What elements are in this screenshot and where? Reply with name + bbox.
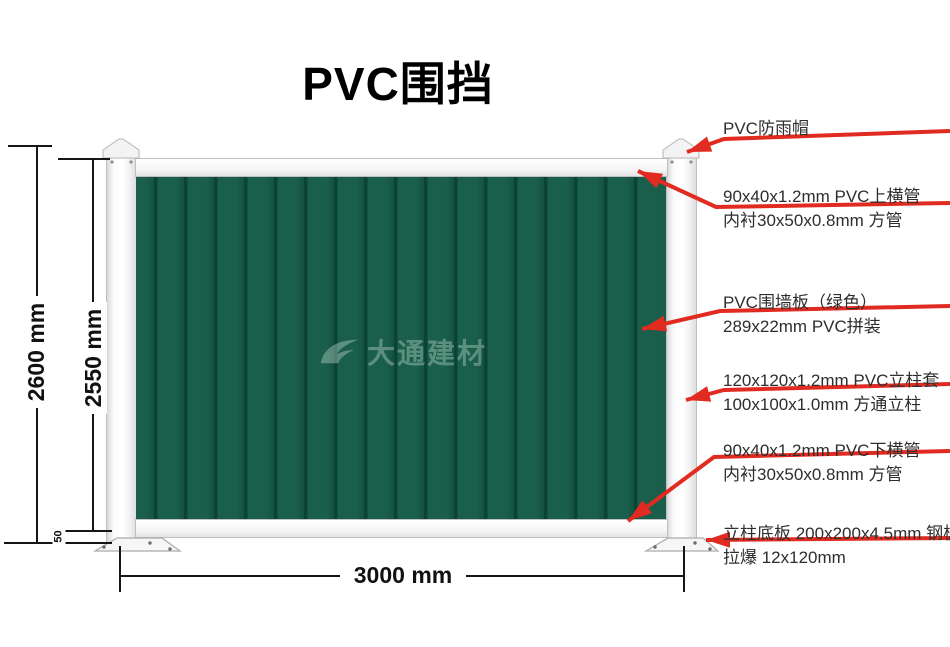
callout-line: PVC防雨帽 bbox=[723, 117, 809, 141]
callout-post: 120x120x1.2mm PVC立柱套 100x100x1.0mm 方通立柱 bbox=[723, 369, 939, 417]
callout-rain-cap: PVC防雨帽 bbox=[723, 117, 809, 141]
dim-label-2600: 2600 mm bbox=[22, 296, 50, 408]
dim-tick-3000-left bbox=[119, 546, 121, 592]
callout-bottom-rail: 90x40x1.2mm PVC下横管 内衬30x50x0.8mm 方管 bbox=[723, 439, 920, 487]
pvc-fence-diagram: PVC围挡 大通建材 bbox=[0, 0, 950, 647]
dim-label-3000: 3000 mm bbox=[340, 561, 466, 589]
callout-line: 内衬30x50x0.8mm 方管 bbox=[723, 463, 920, 487]
callout-line: 100x100x1.0mm 方通立柱 bbox=[723, 393, 939, 417]
dim-tick-50-top bbox=[60, 530, 112, 532]
dim-label-2550: 2550 mm bbox=[79, 302, 107, 414]
callout-line: 289x22mm PVC拼装 bbox=[723, 315, 881, 339]
callout-line: 拉爆 12x120mm bbox=[723, 546, 950, 570]
dim-tick-2550-top bbox=[58, 158, 110, 160]
base-plate-left bbox=[95, 538, 180, 551]
callout-line: 90x40x1.2mm PVC下横管 bbox=[723, 439, 920, 463]
dim-label-50: 50 bbox=[53, 526, 66, 548]
callout-base-plate: 立柱底板 200x200x4.5mm 钢板 拉爆 12x120mm bbox=[723, 522, 950, 570]
callout-line: PVC围墙板（绿色） bbox=[723, 291, 881, 315]
callout-line: 90x40x1.2mm PVC上横管 bbox=[723, 185, 920, 209]
callout-line: 立柱底板 200x200x4.5mm 钢板 bbox=[723, 522, 950, 546]
callout-top-rail: 90x40x1.2mm PVC上横管 内衬30x50x0.8mm 方管 bbox=[723, 185, 920, 233]
callout-wall-panel: PVC围墙板（绿色） 289x22mm PVC拼装 bbox=[723, 291, 881, 339]
dim-tick-2600-top bbox=[8, 145, 52, 147]
callout-line: 内衬30x50x0.8mm 方管 bbox=[723, 209, 920, 233]
callout-line: 120x120x1.2mm PVC立柱套 bbox=[723, 369, 939, 393]
dim-tick-3000-right bbox=[683, 546, 685, 592]
